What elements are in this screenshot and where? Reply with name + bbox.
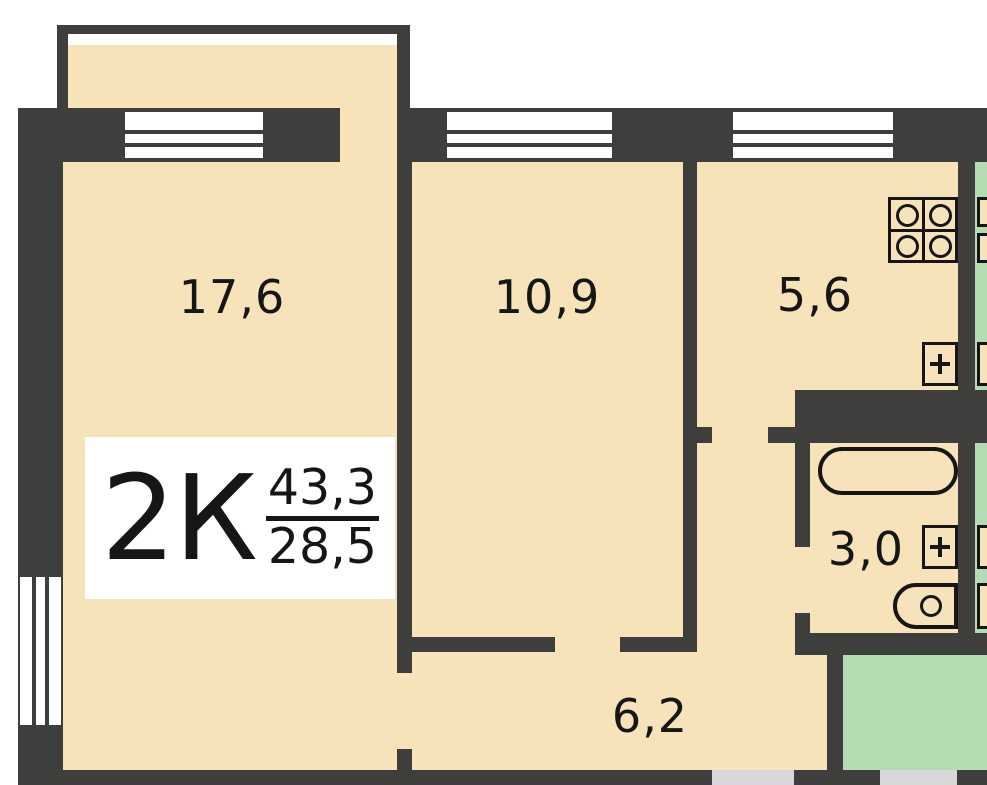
wall-kitchen-bathroom [795,390,975,443]
toilet-icon [893,583,958,629]
total-area-value: 43,3 [266,462,379,521]
room-area-label-bedroom: 10,9 [494,270,600,324]
neighbor-fixture [977,525,987,569]
balcony-doorway [880,770,957,785]
wall-kitchen-bathroom [975,390,987,443]
bathroom-sink-icon [922,525,958,569]
bedroom-window [447,112,612,158]
wall-stub [768,427,795,443]
balcony-wall [397,25,410,162]
balcony-wall [57,25,410,34]
neighbor-fixture [977,342,987,386]
room-area-label-hallway: 6,2 [612,689,688,743]
apartment-type-label: 2К [101,462,256,574]
floor-plan: 17,6 10,9 5,6 3,0 6,2 2К 43,3 28,5 [0,0,987,785]
wall-stub [697,427,712,443]
room-area-label-kitchen: 5,6 [777,268,853,322]
wall-bathroom-bottom [795,633,987,655]
balcony-bottom-right [843,655,987,770]
balcony-top-window [68,34,397,45]
wall-bedroom-kitchen [683,162,697,652]
living-area-value: 28,5 [268,521,377,574]
room-area-label-bathroom: 3,0 [828,522,904,576]
room-area-label-living: 17,6 [179,270,285,324]
living-room-side-window [20,577,61,725]
balcony-wall [57,25,68,110]
bathtub-icon [818,447,958,495]
entrance-doorway [712,770,794,785]
apartment-type-badge: 2К 43,3 28,5 [85,437,395,599]
wall-bathroom-left [795,443,810,547]
wall-bottom [957,770,987,785]
area-fraction: 43,3 28,5 [266,462,379,574]
kitchen-window [733,112,893,158]
neighbor-fixture [977,233,987,263]
neighbor-fixture [977,197,987,227]
balcony-door-opening [340,108,397,162]
neighbor-fixture [977,583,987,629]
wall-stub [397,749,412,770]
wall-living-bedroom [397,162,412,673]
kitchen-sink-icon [922,342,958,386]
wall-bottom [18,770,712,785]
wall-balcony-left [827,655,843,770]
living-room-window [125,112,263,158]
stove-icon [888,197,958,263]
wall-bottom [794,770,880,785]
wall-bedroom-bottom [400,637,555,652]
